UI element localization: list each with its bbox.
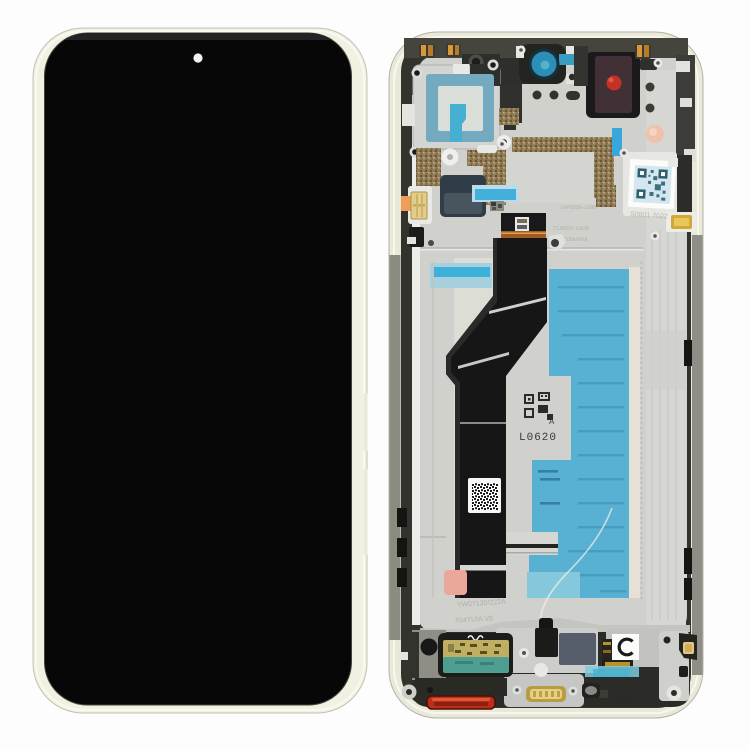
svg-text:L0620: L0620 bbox=[519, 432, 557, 444]
svg-text:CU0026-10M8: CU0026-10M8 bbox=[553, 226, 589, 232]
svg-text:14P0006-1098: 14P0006-1098 bbox=[560, 205, 596, 211]
svg-text:A: A bbox=[549, 417, 555, 426]
